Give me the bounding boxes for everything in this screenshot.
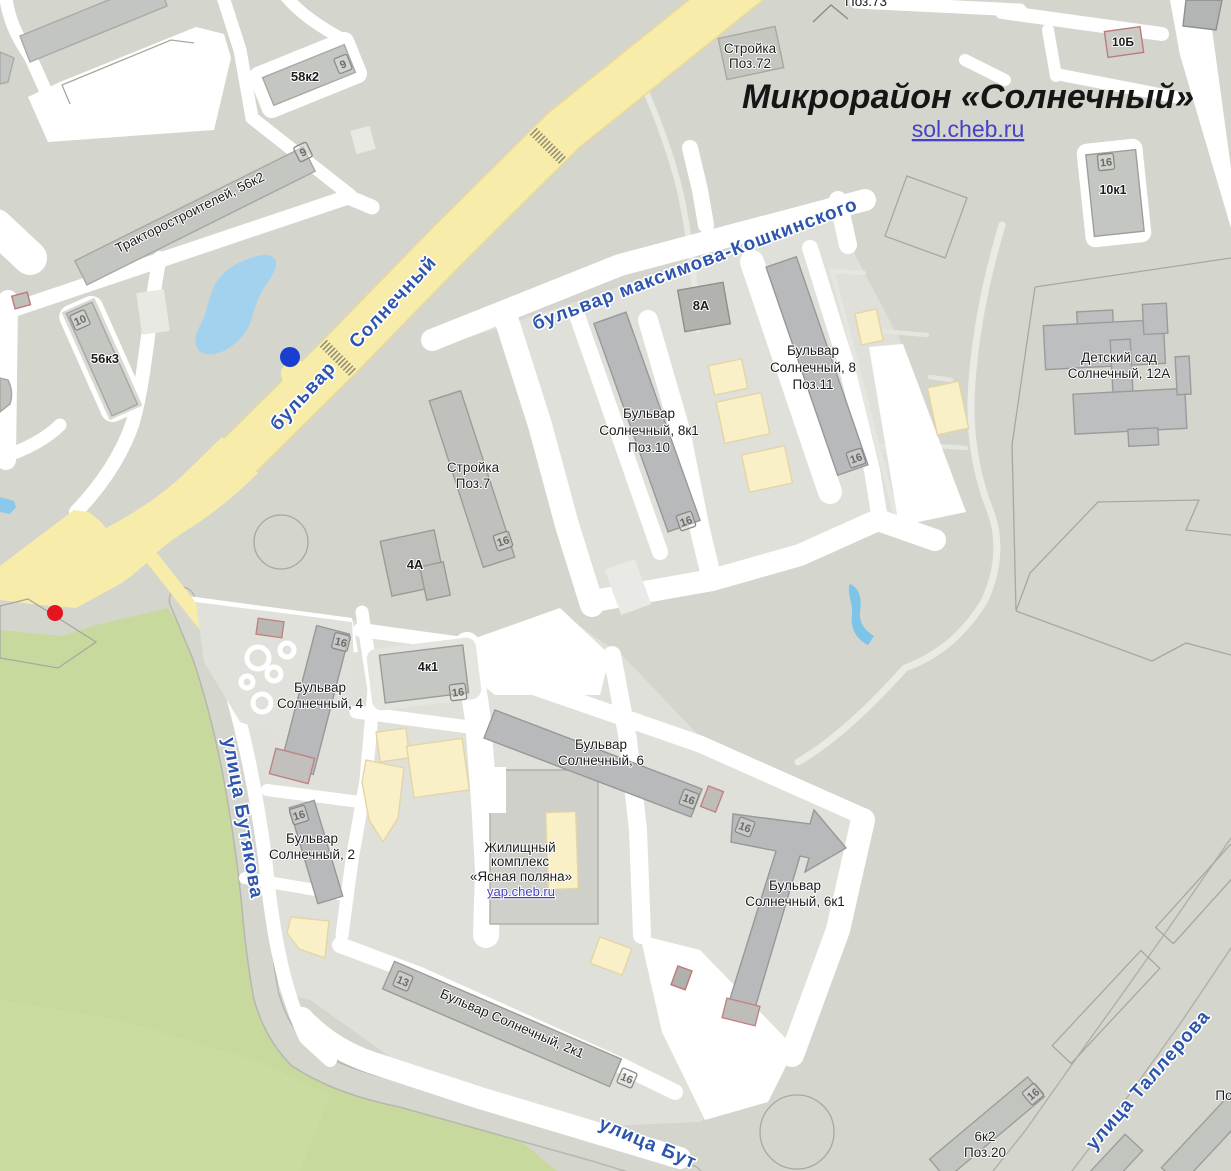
svg-text:Солнечный, 8к1: Солнечный, 8к1 [599, 423, 699, 438]
svg-text:Поз.10: Поз.10 [628, 440, 670, 455]
svg-text:8А: 8А [693, 298, 710, 313]
svg-text:Поз.72: Поз.72 [729, 56, 771, 71]
svg-text:Солнечный, 12А: Солнечный, 12А [1068, 366, 1171, 381]
svg-text:Стройка: Стройка [447, 460, 500, 475]
svg-text:Солнечный, 4: Солнечный, 4 [277, 696, 364, 711]
svg-text:10Б: 10Б [1112, 35, 1134, 49]
svg-text:Поз.73: Поз.73 [845, 0, 887, 9]
svg-text:sol.cheb.ru: sol.cheb.ru [912, 116, 1025, 142]
svg-text:4к1: 4к1 [418, 660, 438, 674]
svg-text:«Ясная поляна»: «Ясная поляна» [470, 869, 572, 884]
svg-text:Солнечный, 2: Солнечный, 2 [269, 847, 355, 862]
svg-text:Поз.7: Поз.7 [456, 476, 491, 491]
svg-text:Детский сад: Детский сад [1081, 350, 1157, 365]
svg-text:6к2: 6к2 [975, 1129, 996, 1144]
svg-text:Микрорайон «Солнечный»: Микрорайон «Солнечный» [742, 78, 1194, 116]
svg-text:yap.cheb.ru: yap.cheb.ru [487, 884, 555, 899]
svg-text:Солнечный, 8: Солнечный, 8 [770, 360, 856, 375]
svg-text:Бульвар: Бульвар [623, 406, 675, 421]
svg-text:Солнечный, 6: Солнечный, 6 [558, 753, 644, 768]
svg-text:комплекс: комплекс [491, 854, 550, 869]
svg-text:Поз.11: Поз.11 [792, 377, 833, 392]
svg-text:Бульвар: Бульвар [294, 680, 346, 695]
svg-text:16: 16 [1099, 156, 1112, 169]
svg-text:Бульвар: Бульвар [286, 831, 338, 846]
svg-text:4А: 4А [407, 557, 424, 572]
svg-text:Поз.20: Поз.20 [964, 1145, 1006, 1160]
svg-text:Стройка: Стройка [724, 41, 777, 56]
svg-text:56к3: 56к3 [91, 351, 119, 366]
svg-text:58к2: 58к2 [291, 69, 319, 84]
svg-text:Бульвар: Бульвар [575, 737, 627, 752]
svg-text:16: 16 [451, 686, 465, 699]
svg-text:10к1: 10к1 [1099, 183, 1126, 197]
svg-text:Бульвар: Бульвар [787, 343, 839, 358]
svg-text:Солнечный, 6к1: Солнечный, 6к1 [745, 894, 845, 909]
svg-text:По: По [1215, 1088, 1231, 1103]
svg-text:Жилищный: Жилищный [484, 840, 555, 855]
svg-text:Бульвар: Бульвар [769, 878, 821, 893]
